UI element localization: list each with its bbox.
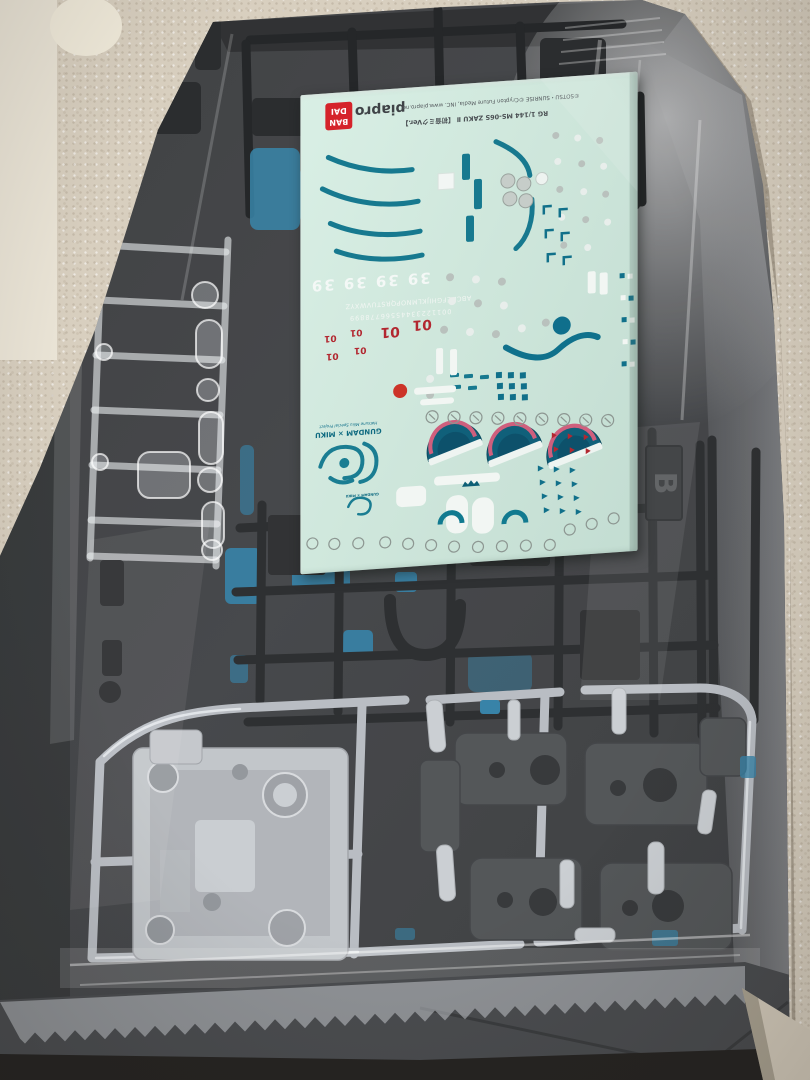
svg-text:01: 01 [354, 344, 366, 355]
svg-text:01: 01 [350, 326, 362, 337]
decal-dot-cluster-top [501, 128, 611, 257]
svg-text:01: 01 [326, 350, 338, 361]
decal-tiny-teal-glyphs [538, 462, 582, 517]
bandai-logo-line1: BAN [329, 117, 348, 127]
emblem-center-dot [339, 458, 349, 469]
decal-big-teal-dot [553, 316, 571, 335]
decal-white-blobs [396, 472, 500, 539]
svg-text:01: 01 [324, 332, 336, 343]
water-decal-sheet: DAI BAN piapro ©SOTSU・SUNRISE ©Crypton F… [300, 72, 637, 575]
decal-red-dot [393, 383, 407, 398]
decal-wave-stripe [506, 334, 598, 359]
decal-fan-shields [420, 404, 603, 479]
svg-text:01: 01 [412, 316, 431, 333]
decal-white-square [438, 173, 454, 190]
photo-kit-box-scene: B [0, 0, 810, 1080]
piapro-logo: piapro [355, 100, 406, 120]
wall-strip [0, 0, 57, 360]
decal-header: DAI BAN piapro ©SOTSU・SUNRISE ©Crypton F… [325, 86, 579, 134]
decal-credit-line: ©SOTSU・SUNRISE ©Crypton Future Media, IN… [400, 92, 580, 112]
decal-teal-stripes [322, 139, 532, 264]
gundam-miku-emblem-small: GUNDAM × MIKU [345, 492, 378, 516]
bandai-logo-line2: DAI [331, 106, 347, 116]
gundam-miku-emblem: Hatsune Miku Special Project GUNDAM × MI… [315, 420, 382, 485]
decal-01-marks: 01 01 01 01 01 01 [324, 316, 432, 362]
decal-dot-cluster-mid [426, 266, 550, 399]
decal-39-row: 39 39 39 39 [310, 269, 431, 295]
svg-text:01: 01 [380, 323, 399, 340]
decal-bracket-glyphs [544, 205, 572, 267]
floor-light-spot [50, 0, 122, 56]
decal-product-line: RG 1/144 MS-06S ZAKU Ⅱ 【初音ミクVer.】 [402, 109, 548, 128]
decal-art: DAI BAN piapro ©SOTSU・SUNRISE ©Crypton F… [300, 72, 637, 575]
decal-teal-square-grid [496, 370, 528, 402]
